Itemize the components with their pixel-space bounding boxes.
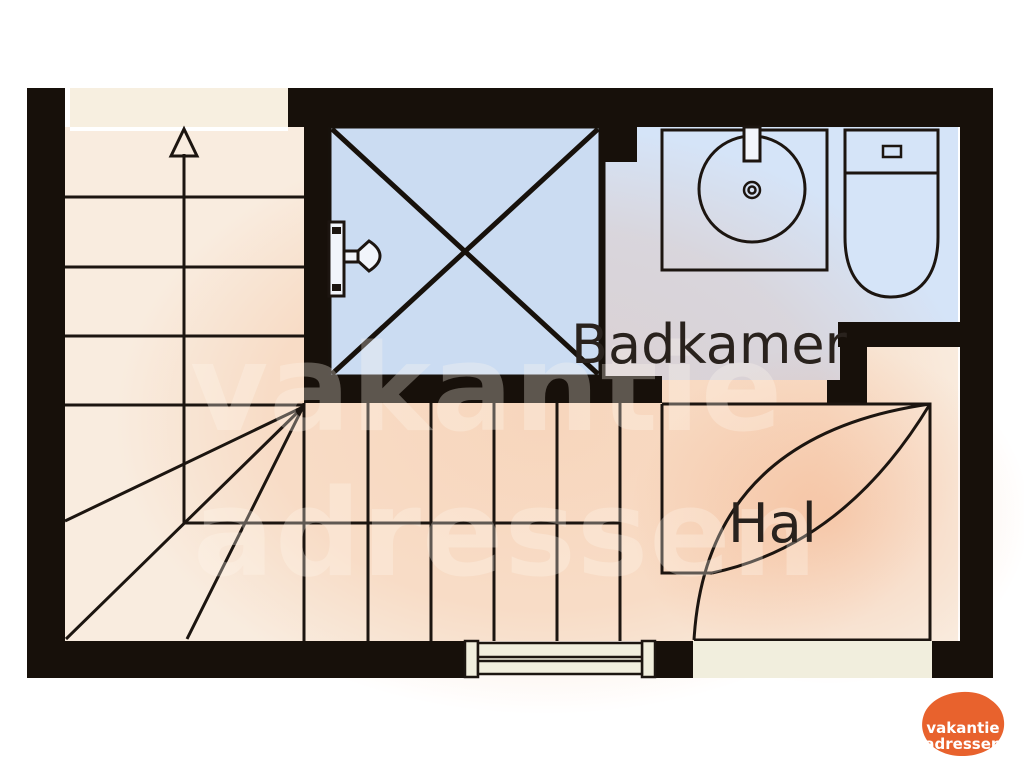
wall-bottom-left [27,641,465,678]
logo-line2: adressen [924,735,1001,753]
room-label-badkamer: Badkamer [571,313,848,376]
stair-landing [70,88,288,128]
shower-rail-mark-bottom [332,284,341,291]
wall-left [27,88,65,678]
wall-top [288,88,992,127]
window [465,641,655,677]
floorplan-svg: vakantie adressen Badkamer Hal vakantie … [0,0,1024,768]
toilet-tank [845,130,938,173]
wall-bathroom-bottom-right [838,322,960,347]
wall-door-right [827,380,867,403]
landing-gap [70,127,288,131]
wall-shower-stub [600,125,637,162]
sink-tap-icon [744,127,760,161]
wall-right [960,88,993,678]
shower-head-stem [344,251,358,262]
room-label-hal: Hal [728,492,817,555]
wall-bottom-mid [655,641,693,678]
wall-bottom-right [932,641,992,678]
threshold [693,641,932,678]
toilet [845,130,938,297]
watermark-line2: adressen [193,465,818,604]
floorplan-page: vakantie adressen Badkamer Hal vakantie … [0,0,1024,768]
vakantieadressen-logo: vakantie adressen [922,692,1004,756]
window-mullion-right [642,641,655,677]
window-frame [478,643,642,674]
shower-rail-mark-top [332,227,341,234]
window-mullion-left [465,641,478,677]
toilet-bowl [845,173,938,297]
